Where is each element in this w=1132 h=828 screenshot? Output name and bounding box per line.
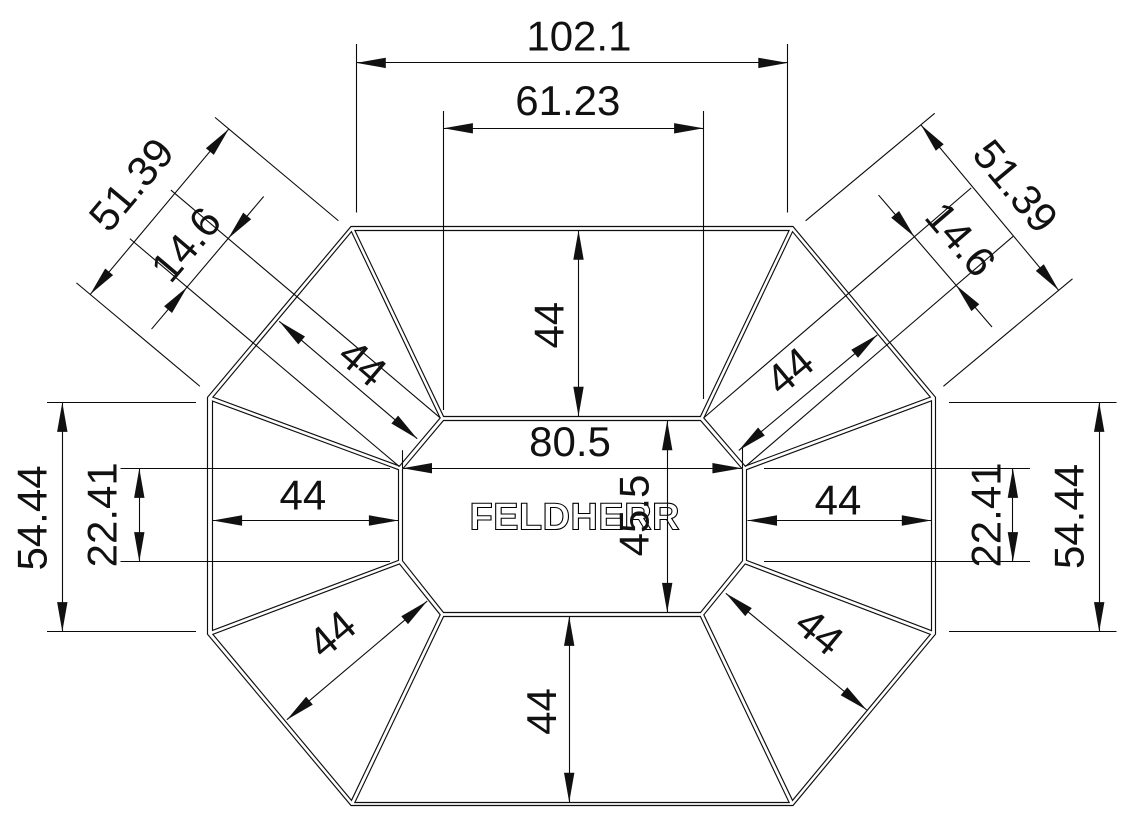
svg-text:22.41: 22.41 [963,462,1010,567]
svg-text:80.5: 80.5 [529,418,611,465]
svg-text:54.44: 54.44 [9,465,56,570]
svg-text:22.41: 22.41 [78,462,125,567]
svg-text:44: 44 [526,302,573,349]
svg-text:44: 44 [518,688,565,735]
svg-text:54.44: 54.44 [1046,464,1093,569]
svg-text:44: 44 [280,471,327,518]
svg-text:102.1: 102.1 [526,12,631,59]
svg-text:61.23: 61.23 [515,77,620,124]
svg-text:45.5: 45.5 [611,475,658,557]
svg-text:44: 44 [815,476,862,523]
